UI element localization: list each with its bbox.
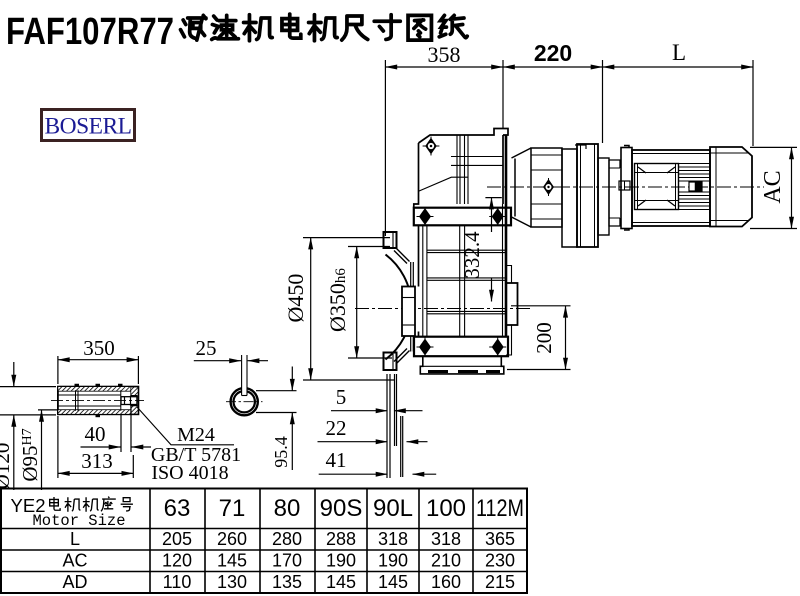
svg-text:200: 200: [532, 322, 556, 354]
svg-text:AC: AC: [62, 551, 87, 571]
svg-text:130: 130: [217, 572, 247, 592]
svg-text:135: 135: [272, 572, 302, 592]
svg-text:215: 215: [485, 572, 515, 592]
svg-text:Motor Size: Motor Size: [32, 512, 125, 530]
svg-text:120: 120: [162, 551, 192, 571]
svg-text:M24: M24: [177, 424, 215, 446]
svg-text:280: 280: [272, 529, 302, 549]
svg-text:AD: AD: [62, 572, 87, 592]
svg-text:41: 41: [326, 448, 347, 472]
svg-text:160: 160: [431, 572, 461, 592]
svg-text:Ø450: Ø450: [283, 274, 308, 323]
svg-text:313: 313: [81, 449, 113, 473]
svg-text:L: L: [70, 529, 80, 549]
svg-text:Ø120: Ø120: [0, 443, 14, 490]
svg-text:145: 145: [326, 572, 356, 592]
svg-text:145: 145: [378, 572, 408, 592]
svg-text:90L: 90L: [373, 495, 413, 522]
svg-text:358: 358: [428, 42, 461, 67]
svg-text:BOSERL: BOSERL: [44, 114, 131, 140]
svg-text:260: 260: [217, 529, 247, 549]
svg-text:90S: 90S: [320, 495, 363, 522]
svg-text:5: 5: [336, 385, 347, 409]
svg-text:190: 190: [378, 551, 408, 571]
svg-text:112M: 112M: [476, 495, 524, 522]
svg-text:210: 210: [431, 551, 461, 571]
svg-text:332.4: 332.4: [460, 231, 484, 279]
svg-text:145: 145: [217, 551, 247, 571]
svg-text:230: 230: [485, 551, 515, 571]
svg-text:350: 350: [83, 336, 115, 360]
svg-text:110: 110: [163, 572, 192, 592]
svg-text:Ø95H7: Ø95H7: [18, 428, 42, 481]
svg-text:25: 25: [196, 336, 217, 360]
svg-text:190: 190: [326, 551, 356, 571]
svg-text:40: 40: [85, 422, 106, 446]
svg-text:288: 288: [326, 529, 356, 549]
svg-text:318: 318: [378, 529, 408, 549]
svg-text:FAF107R77: FAF107R77: [6, 11, 174, 53]
svg-text:100: 100: [426, 495, 466, 522]
svg-text:95.4: 95.4: [271, 436, 291, 468]
svg-text:63: 63: [164, 495, 191, 522]
svg-text:220: 220: [534, 40, 572, 66]
svg-text:L: L: [672, 40, 686, 65]
svg-text:ISO 4018: ISO 4018: [151, 462, 228, 484]
svg-text:71: 71: [219, 495, 246, 522]
svg-text:22: 22: [326, 416, 347, 440]
svg-text:318: 318: [431, 529, 461, 549]
svg-text:80: 80: [274, 495, 301, 522]
svg-text:365: 365: [485, 529, 515, 549]
svg-text:Ø350h6: Ø350h6: [325, 268, 350, 332]
svg-text:205: 205: [162, 529, 192, 549]
svg-text:170: 170: [272, 551, 302, 571]
